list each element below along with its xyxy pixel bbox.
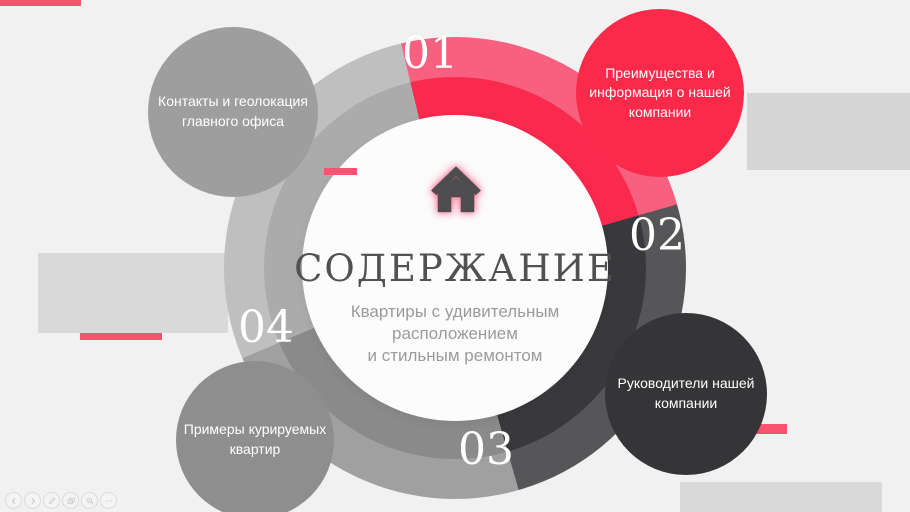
chevron-left-icon — [8, 495, 20, 507]
bubble-leaders: Руководители нашей компании — [605, 313, 767, 475]
pen-icon — [46, 495, 58, 507]
ellipsis-icon — [103, 495, 115, 507]
section-number-04: 04 — [238, 306, 294, 350]
all-slides-button[interactable] — [62, 492, 79, 509]
home-icon — [427, 160, 485, 219]
section-number-01: 01 — [402, 32, 458, 76]
section-number-02: 02 — [629, 214, 685, 258]
slideshow-controls — [5, 492, 117, 509]
slide-subtitle: Квартиры с удивительным расположением и … — [295, 301, 615, 367]
subtitle-line-1: Квартиры с удивительным — [295, 301, 615, 323]
all-slides-icon — [65, 495, 77, 507]
bubble-contacts-label: Контакты и геолокация главного офиса — [155, 92, 311, 131]
magnifier-icon — [84, 495, 96, 507]
decor-rect-right — [747, 93, 910, 170]
chevron-right-icon — [27, 495, 39, 507]
next-slide-button[interactable] — [24, 492, 41, 509]
bubble-examples-label: Примеры курируемых квартир — [177, 420, 333, 459]
decor-rect-left — [38, 253, 228, 333]
bubble-examples: Примеры курируемых квартир — [176, 361, 334, 512]
bubble-advantages-label: Преимущества и информация о нашей компан… — [587, 64, 733, 123]
bubble-leaders-label: Руководители нашей компании — [608, 374, 764, 413]
slide-title: СОДЕРЖАНИЕ — [294, 247, 616, 290]
bubble-advantages: Преимущества и информация о нашей компан… — [576, 9, 744, 177]
bubble-contacts: Контакты и геолокация главного офиса — [148, 27, 318, 197]
accent-dash-center — [324, 168, 357, 175]
subtitle-line-2: расположением — [295, 323, 615, 345]
subtitle-line-3: и стильным ремонтом — [295, 345, 615, 367]
zoom-button[interactable] — [81, 492, 98, 509]
pen-button[interactable] — [43, 492, 60, 509]
presentation-slide: 01 02 03 04 Контакты и геолокация главно… — [0, 0, 910, 512]
accent-bar-left — [80, 333, 162, 340]
previous-slide-button[interactable] — [5, 492, 22, 509]
more-options-button[interactable] — [100, 492, 117, 509]
decor-rect-bottom-right — [680, 482, 882, 512]
section-number-03: 03 — [458, 428, 514, 472]
accent-bar-top-left — [0, 0, 81, 6]
accent-bar-right — [757, 424, 787, 434]
